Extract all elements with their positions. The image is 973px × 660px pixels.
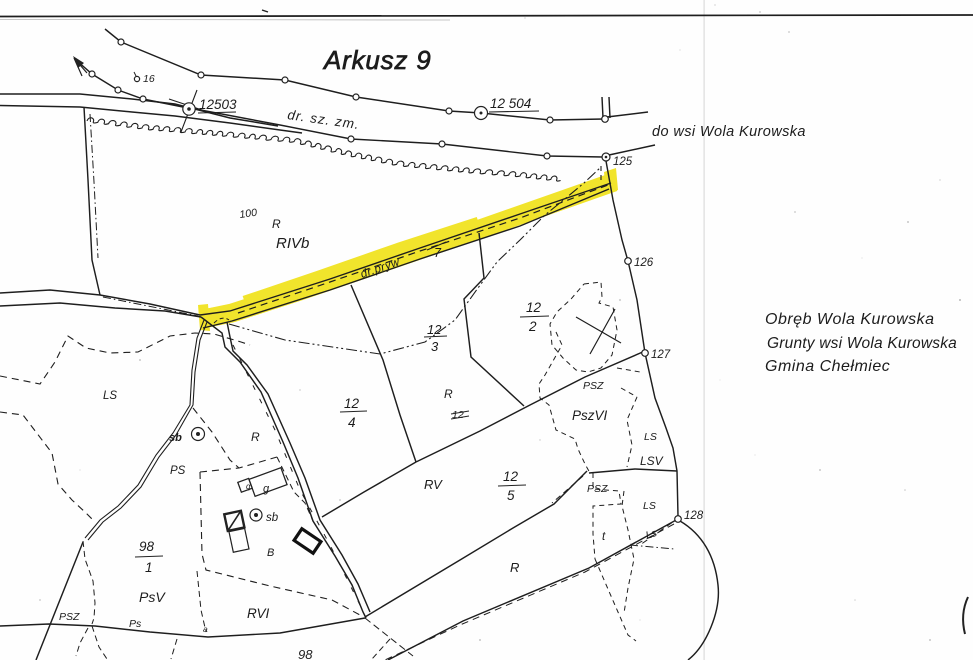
svg-text:sb: sb	[266, 512, 279, 524]
svg-text:Ps: Ps	[129, 618, 142, 630]
svg-text:128: 128	[684, 510, 704, 522]
svg-text:12: 12	[427, 322, 442, 337]
svg-text:16: 16	[143, 73, 155, 85]
svg-text:Arkusz 9: Arkusz 9	[322, 45, 432, 75]
svg-text:LSV: LSV	[640, 454, 664, 468]
svg-text:Gmina Chełmiec: Gmina Chełmiec	[765, 358, 890, 375]
svg-text:12: 12	[344, 396, 360, 411]
svg-text:127: 127	[651, 349, 671, 361]
svg-text:98: 98	[298, 647, 313, 660]
svg-text:Obręb Wola Kurowska: Obręb Wola Kurowska	[765, 311, 935, 328]
svg-text:12503: 12503	[199, 97, 237, 112]
svg-text:R: R	[444, 387, 453, 401]
svg-text:g: g	[263, 483, 270, 495]
svg-text:B: B	[267, 547, 274, 559]
svg-text:2: 2	[528, 319, 537, 334]
svg-text:3: 3	[431, 339, 439, 354]
svg-text:1: 1	[145, 560, 153, 575]
svg-text:sb: sb	[169, 432, 182, 444]
svg-text:12 504: 12 504	[490, 96, 531, 111]
svg-text:12: 12	[503, 469, 519, 484]
svg-text:q: q	[246, 482, 251, 491]
svg-text:LS: LS	[643, 500, 656, 512]
svg-text:125: 125	[613, 156, 633, 168]
svg-text:R: R	[510, 560, 519, 575]
svg-text:a: a	[203, 624, 208, 634]
svg-text:98: 98	[139, 539, 155, 554]
svg-text:RIVb: RIVb	[276, 235, 309, 252]
svg-text:PS: PS	[170, 465, 186, 477]
svg-text:4: 4	[348, 415, 356, 430]
svg-text:7: 7	[434, 246, 442, 260]
svg-text:RVI: RVI	[247, 606, 270, 621]
svg-text:LS: LS	[644, 431, 657, 443]
svg-text:R: R	[272, 217, 281, 231]
svg-text:PSZ: PSZ	[59, 611, 80, 623]
svg-text:PSZ: PSZ	[583, 380, 604, 392]
svg-text:RV: RV	[424, 477, 443, 492]
svg-text:12: 12	[452, 409, 464, 421]
svg-text:R: R	[251, 430, 260, 444]
svg-text:PszVI: PszVI	[572, 408, 608, 423]
svg-text:12: 12	[526, 300, 542, 315]
svg-text:PsV: PsV	[139, 589, 166, 605]
svg-text:5: 5	[507, 488, 515, 503]
svg-text:LS: LS	[103, 390, 117, 402]
svg-text:126: 126	[634, 257, 654, 269]
svg-text:100: 100	[239, 207, 258, 221]
svg-text:Grunty wsi Wola Kurowska: Grunty wsi Wola Kurowska	[767, 335, 957, 352]
svg-text:do wsi Wola Kurowska: do wsi Wola Kurowska	[652, 124, 806, 140]
svg-text:PSZ: PSZ	[587, 483, 608, 495]
